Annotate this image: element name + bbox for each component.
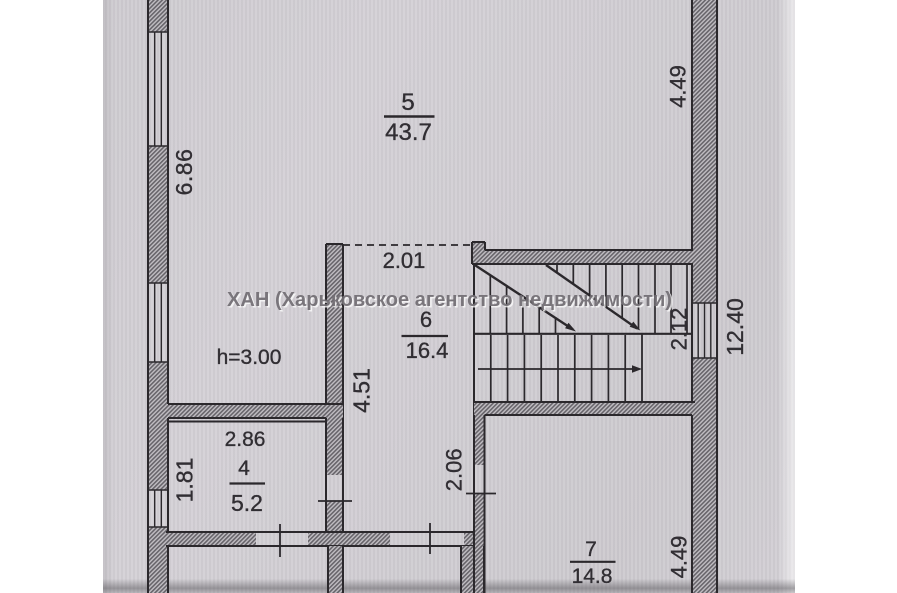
svg-text:7: 7: [585, 538, 597, 561]
svg-text:16.4: 16.4: [406, 338, 449, 363]
svg-text:h=3.00: h=3.00: [217, 346, 282, 369]
svg-text:6.86: 6.86: [171, 149, 197, 196]
svg-text:12.40: 12.40: [722, 298, 748, 356]
svg-text:ХАН (Харьковское агентство нед: ХАН (Харьковское агентство недвижимости): [227, 288, 672, 311]
svg-text:2.86: 2.86: [225, 428, 266, 451]
svg-text:2.01: 2.01: [383, 248, 426, 273]
svg-text:4: 4: [238, 457, 250, 480]
svg-text:14.8: 14.8: [572, 565, 613, 588]
svg-text:43.7: 43.7: [385, 119, 432, 146]
svg-text:2.12: 2.12: [667, 308, 692, 351]
svg-text:4.49: 4.49: [666, 65, 691, 108]
svg-text:1.81: 1.81: [172, 458, 198, 503]
svg-text:5.2: 5.2: [231, 490, 263, 516]
svg-text:4.51: 4.51: [349, 368, 375, 413]
svg-text:2.06: 2.06: [442, 448, 467, 491]
svg-text:4.49: 4.49: [667, 536, 692, 579]
svg-text:5: 5: [401, 89, 414, 116]
